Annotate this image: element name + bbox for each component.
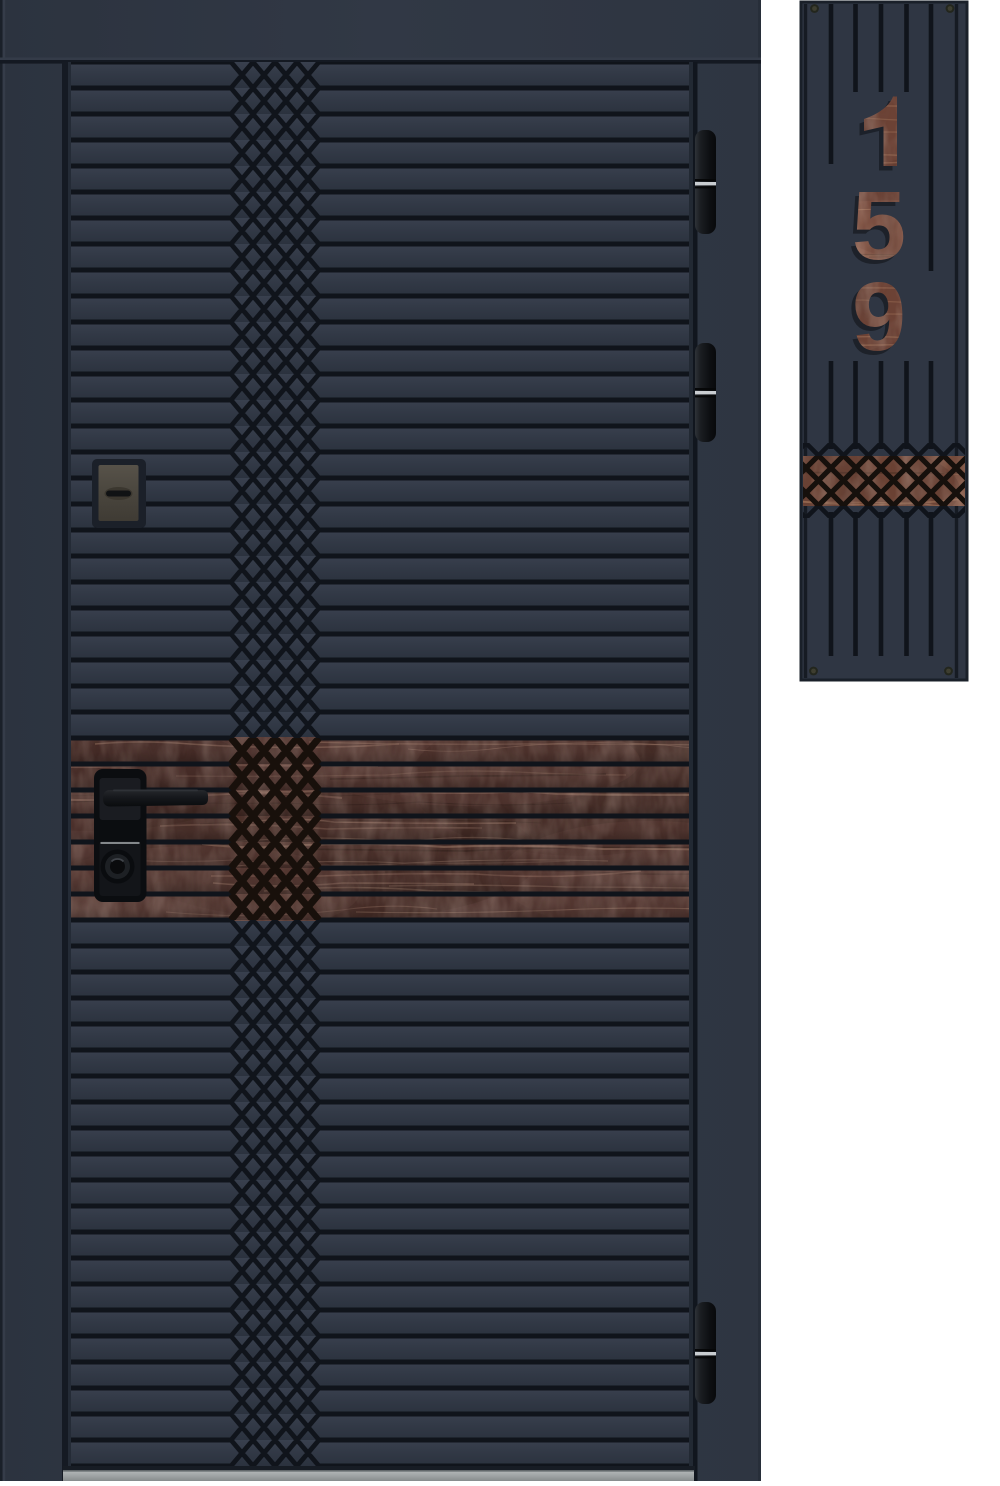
svg-text:9: 9: [852, 262, 906, 371]
